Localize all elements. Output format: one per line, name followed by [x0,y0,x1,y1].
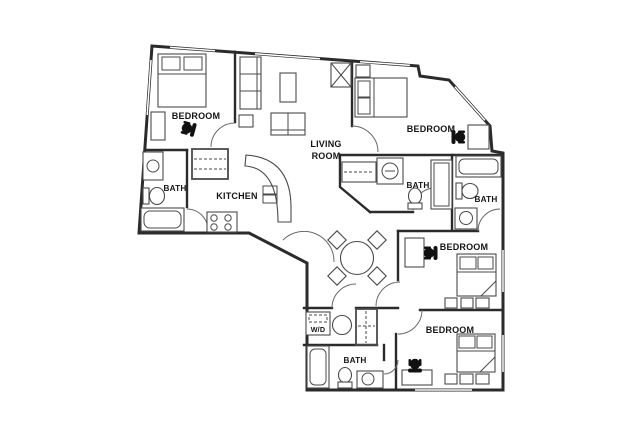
label-living-line1: LIVING [310,139,341,149]
dining-set [328,231,386,285]
storage-box [461,298,473,308]
toilet-tank [408,203,422,209]
dining-chair [368,231,386,249]
toilet [150,188,165,205]
dining-table [341,242,374,275]
desk [405,238,424,267]
bed [457,334,495,372]
label-bath-top-left: BATH [164,184,187,193]
desk [151,112,165,140]
toilet [409,188,422,204]
label-bedroom-bottom: BEDROOM [426,325,474,335]
floor-plan-page: BEDROOM BATH KITCHEN LIVING ROOM BEDROOM… [0,0,640,432]
kitchen-sink [263,195,277,203]
desk-chair-icon [180,120,197,137]
coffee-table [280,73,296,102]
storage-box [445,298,457,308]
pantry-closet [192,149,228,179]
label-bedroom-top-right: BEDROOM [407,124,455,134]
label-bedroom-top-left: BEDROOM [172,111,220,121]
toilet-tank [143,188,149,204]
desk [468,125,489,149]
label-bedroom-mid-right: BEDROOM [440,242,488,252]
end-table [239,115,253,127]
bath-bottom-fixtures [307,346,383,388]
toilet [339,368,352,383]
label-washer-dryer: W/D [311,325,326,334]
dining-chair [328,267,346,285]
bedroom-bottom-furniture [402,334,495,385]
label-bath-bottom: BATH [344,356,367,365]
laundry-drum [333,316,352,335]
storage-box [460,374,473,384]
bath-right-fixtures [455,156,501,229]
label-living-line2: ROOM [312,151,341,161]
label-bath-right: BATH [475,195,498,204]
floor-plan-image: BEDROOM BATH KITCHEN LIVING ROOM BEDROOM… [0,0,640,432]
storage-box [445,374,457,384]
living-room-furniture [239,57,351,135]
bed [158,54,206,107]
bedroom-top-left-furniture [151,54,206,140]
storage-box [476,298,489,308]
kitchen-peninsula [245,155,291,222]
nightstand [356,65,370,77]
desk-chair-icon [424,246,438,260]
vanity [143,152,163,180]
label-bath-middle: BATH [407,181,430,190]
desk-chair-icon [408,359,422,373]
label-kitchen: KITCHEN [216,191,257,201]
toilet-tank [456,183,462,199]
sofa [240,57,261,109]
toilet-tank [338,382,352,388]
dining-chair [368,267,386,285]
storage-box [476,374,489,384]
